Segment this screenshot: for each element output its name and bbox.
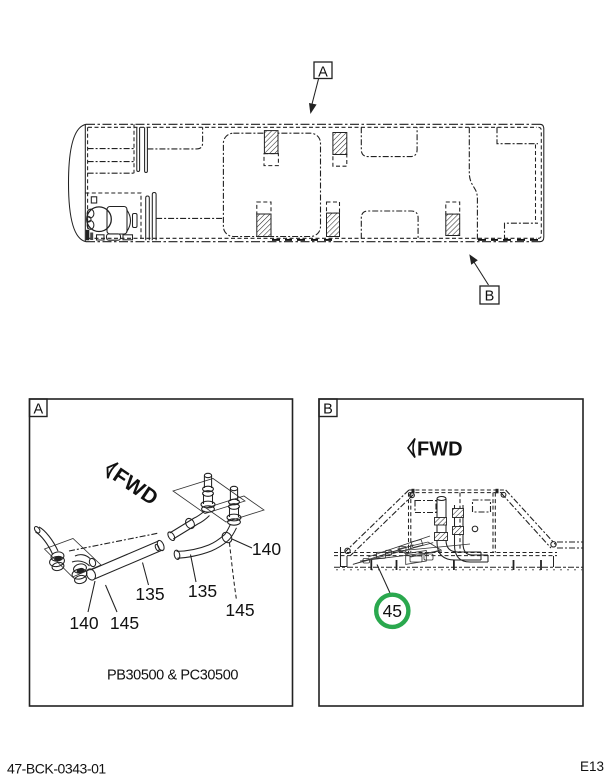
svg-text:135: 135 — [135, 584, 164, 604]
svg-text:A: A — [318, 65, 328, 81]
svg-text:140: 140 — [69, 613, 98, 633]
svg-text:45: 45 — [383, 601, 402, 621]
svg-text:B: B — [485, 289, 495, 305]
svg-text:PB30500 & PC30500: PB30500 & PC30500 — [107, 668, 238, 684]
svg-text:145: 145 — [225, 600, 254, 620]
svg-text:B: B — [323, 402, 333, 418]
svg-text:135: 135 — [188, 581, 217, 601]
svg-text:140: 140 — [252, 539, 281, 559]
svg-text:FWD: FWD — [417, 439, 463, 461]
svg-text:A: A — [33, 402, 43, 418]
svg-text:145: 145 — [110, 613, 139, 633]
svg-text:47-BCK-0343-01: 47-BCK-0343-01 — [7, 761, 106, 777]
svg-text:E13: E13 — [580, 759, 604, 774]
